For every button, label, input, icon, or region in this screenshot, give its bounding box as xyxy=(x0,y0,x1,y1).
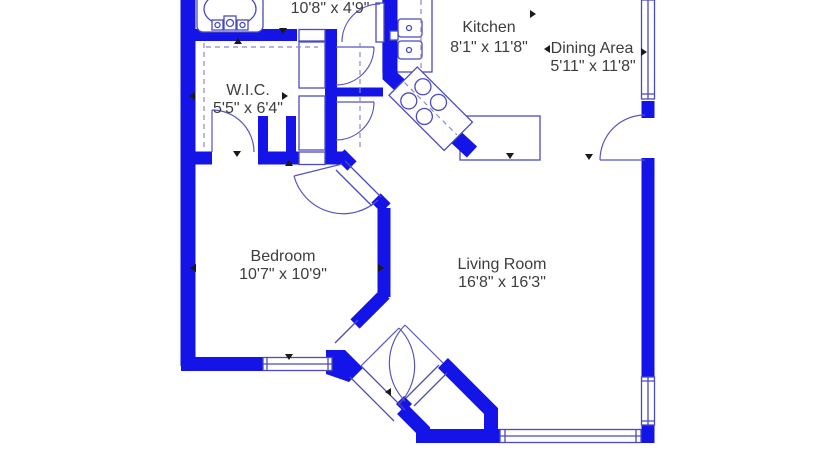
opening-hall-corridor xyxy=(299,30,325,42)
corridor-closet-front-upper xyxy=(299,42,325,88)
room-label-dining-dims: 5'11" x 11'8" xyxy=(550,58,635,75)
opening-corridor-bedroom xyxy=(299,152,325,165)
wall-bedroom-diagonal xyxy=(355,294,385,324)
bedroom-hall-door xyxy=(335,320,358,343)
room-label-wic-dims: 5'5" x 6'4" xyxy=(213,100,283,117)
floor-plan-svg: 10'8" x 4'9" Kitchen 8'1" x 11'8" Dining… xyxy=(0,0,835,467)
corridor-closet-front-lower xyxy=(299,96,325,150)
room-label-wic-name: W.I.C. xyxy=(226,82,270,99)
room-label-kitchen-dims: 8'1" x 11'8" xyxy=(450,39,528,56)
room-label-hall-dims: 10'8" x 4'9" xyxy=(291,0,370,17)
window-dining-right xyxy=(642,0,655,99)
floor-plan-page: 10'8" x 4'9" Kitchen 8'1" x 11'8" Dining… xyxy=(0,0,835,467)
bathtub xyxy=(197,0,263,32)
window-living-right xyxy=(642,377,655,425)
room-label-bedroom-dims: 10'7" x 10'9" xyxy=(239,266,327,283)
closet-door-upper xyxy=(336,47,374,85)
cased-openings xyxy=(299,30,325,165)
vestibule-door xyxy=(389,325,447,406)
window-living-bottom xyxy=(500,430,641,443)
wall-vestibule-inner xyxy=(443,363,491,436)
room-label-dining-name: Dining Area xyxy=(551,40,634,57)
bedroom-door xyxy=(294,161,381,214)
room-label-bedroom-name: Bedroom xyxy=(251,248,316,265)
dining-patio-door xyxy=(600,115,645,160)
room-label-living-dims: 16'8" x 16'3" xyxy=(458,274,546,291)
closet-door-lower xyxy=(336,102,374,140)
window-bedroom xyxy=(263,358,332,371)
room-label-living-name: Living Room xyxy=(458,256,547,273)
room-label-kitchen-name: Kitchen xyxy=(462,19,515,36)
